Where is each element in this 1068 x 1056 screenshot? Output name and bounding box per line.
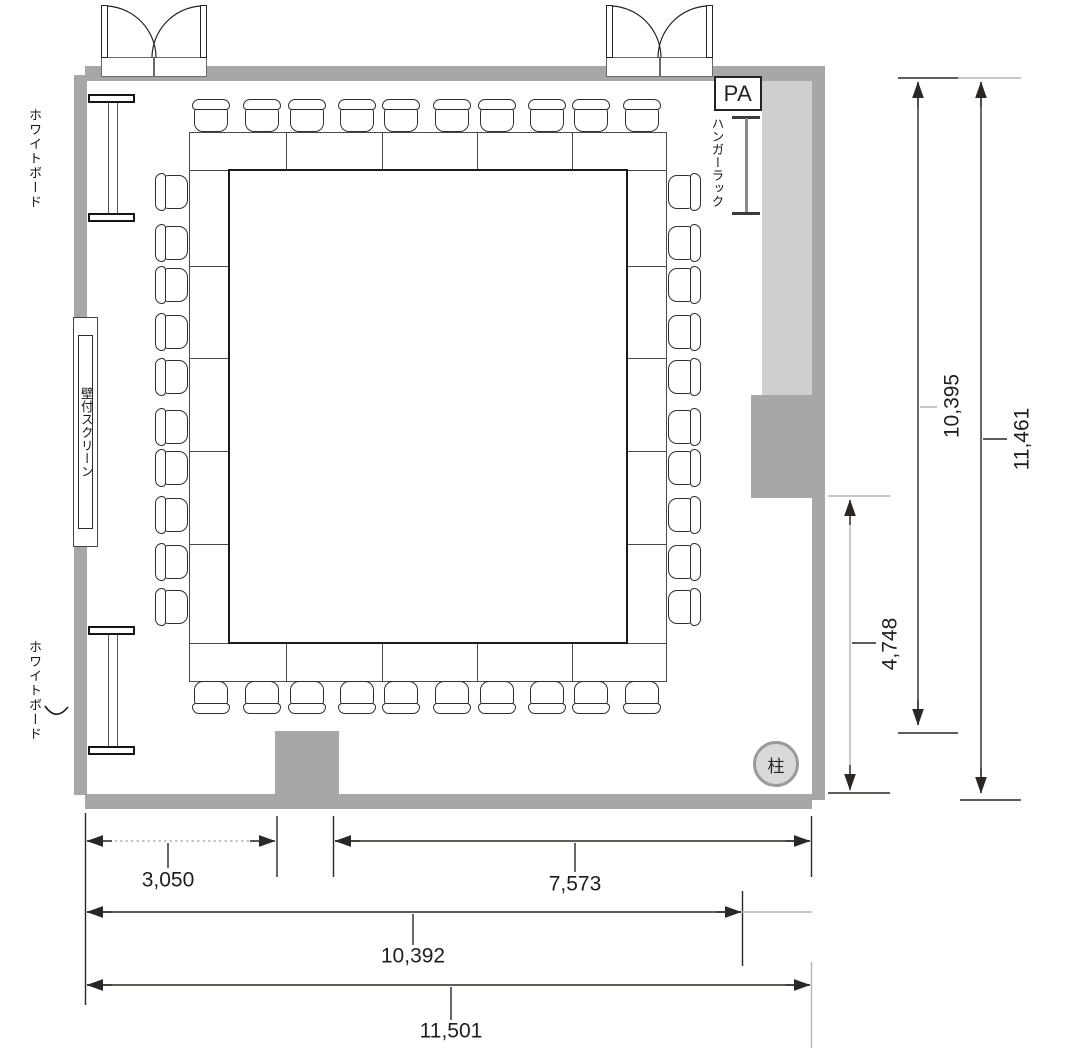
chair bbox=[668, 496, 701, 534]
chair bbox=[155, 449, 188, 487]
chair bbox=[338, 99, 376, 132]
whiteboard-cap-icon bbox=[88, 746, 135, 755]
chair bbox=[155, 224, 188, 262]
chair-back bbox=[288, 703, 326, 714]
chair bbox=[155, 358, 188, 396]
table-divider bbox=[286, 644, 287, 681]
chair-back bbox=[243, 99, 281, 110]
table-band-bottom bbox=[189, 643, 667, 682]
door-swing-arc bbox=[108, 6, 157, 58]
chair bbox=[668, 408, 701, 446]
chair bbox=[382, 99, 420, 132]
chair-back bbox=[690, 543, 701, 581]
chair bbox=[433, 681, 471, 714]
wall-protrusion-bottom bbox=[275, 731, 339, 794]
chair bbox=[623, 99, 661, 132]
door-threshold bbox=[606, 57, 660, 77]
chair bbox=[478, 99, 516, 132]
chair bbox=[668, 449, 701, 487]
floor-plan: 壁付スクリーン ホワイトボード ホワイトボード PA ハンガーラック 柱 bbox=[0, 0, 1068, 1056]
chair bbox=[623, 681, 661, 714]
chair-seat bbox=[290, 107, 324, 132]
whiteboard-cap-icon bbox=[88, 213, 135, 222]
table-inner-edge bbox=[228, 169, 628, 644]
table-divider bbox=[627, 266, 666, 267]
hanger-rack-cap-icon bbox=[732, 212, 760, 215]
storage-strip bbox=[762, 81, 812, 395]
chair bbox=[338, 681, 376, 714]
door-swing-arc bbox=[152, 6, 201, 58]
whiteboard-top-label: ホワイトボード bbox=[28, 108, 41, 210]
chair bbox=[668, 266, 701, 304]
chair-back bbox=[155, 496, 166, 534]
whiteboard-cap-icon bbox=[88, 94, 135, 103]
chair-seat bbox=[163, 226, 188, 260]
chair bbox=[192, 681, 230, 714]
chair-seat bbox=[163, 410, 188, 444]
chair-back bbox=[382, 99, 420, 110]
chair-seat bbox=[163, 498, 188, 532]
chair-seat bbox=[163, 268, 188, 302]
chair bbox=[668, 173, 701, 211]
table-band-left bbox=[189, 170, 230, 644]
chair-back bbox=[338, 99, 376, 110]
chair-seat bbox=[480, 107, 514, 132]
chair-seat bbox=[163, 590, 188, 624]
table-divider bbox=[627, 451, 666, 452]
label-pointer-curve bbox=[45, 706, 68, 714]
chair-back bbox=[478, 99, 516, 110]
chair-back bbox=[623, 99, 661, 110]
chair bbox=[155, 266, 188, 304]
chair bbox=[478, 681, 516, 714]
chair-back bbox=[155, 449, 166, 487]
wall-screen-inner: 壁付スクリーン bbox=[78, 335, 93, 529]
door-threshold bbox=[154, 57, 207, 77]
pa-box: PA bbox=[714, 76, 762, 111]
dim-label-7573: 7,573 bbox=[546, 874, 605, 897]
chair-back bbox=[528, 99, 566, 110]
chair-seat bbox=[435, 107, 469, 132]
wall-block-right bbox=[751, 395, 825, 498]
chair-seat bbox=[384, 107, 418, 132]
door-threshold bbox=[660, 57, 713, 77]
table-divider bbox=[190, 266, 229, 267]
table-divider bbox=[382, 133, 383, 170]
table-divider bbox=[190, 544, 229, 545]
table-band-right bbox=[626, 170, 667, 644]
dim-label-4748: 4,748 bbox=[880, 615, 903, 674]
chair bbox=[572, 681, 610, 714]
hanger-rack-icon bbox=[745, 118, 748, 213]
whiteboard-cap-icon bbox=[88, 626, 135, 635]
chair-back bbox=[690, 408, 701, 446]
chair-seat bbox=[625, 107, 659, 132]
dim-label-10395: 10,395 bbox=[942, 371, 965, 441]
table-band-top bbox=[189, 132, 667, 171]
chair-back bbox=[433, 703, 471, 714]
chair-back bbox=[155, 266, 166, 304]
chair-back bbox=[690, 266, 701, 304]
chair-back bbox=[382, 703, 420, 714]
dim-label-11461: 11,461 bbox=[1012, 405, 1035, 474]
door-leaf bbox=[101, 5, 108, 58]
chair bbox=[192, 99, 230, 132]
whiteboard-icon bbox=[108, 100, 118, 216]
chair bbox=[382, 681, 420, 714]
chair bbox=[155, 408, 188, 446]
chair-back bbox=[690, 358, 701, 396]
chair-back bbox=[338, 703, 376, 714]
table-divider bbox=[190, 451, 229, 452]
dim-label-10392: 10,392 bbox=[378, 946, 448, 969]
chair-back bbox=[155, 358, 166, 396]
chair bbox=[155, 313, 188, 351]
chair bbox=[668, 543, 701, 581]
chair-back bbox=[433, 99, 471, 110]
chair-back bbox=[192, 99, 230, 110]
chair-seat bbox=[245, 107, 279, 132]
chair-back bbox=[288, 99, 326, 110]
table-divider bbox=[382, 644, 383, 681]
dim-label-11501: 11,501 bbox=[417, 1021, 486, 1044]
chair-back bbox=[690, 588, 701, 626]
chair-back bbox=[192, 703, 230, 714]
chair-back bbox=[690, 224, 701, 262]
whiteboard-bottom-label: ホワイトボード bbox=[28, 640, 41, 742]
chair-back bbox=[690, 313, 701, 351]
table-divider bbox=[477, 644, 478, 681]
pa-label: PA bbox=[724, 81, 753, 107]
chair bbox=[433, 99, 471, 132]
chair-back bbox=[623, 703, 661, 714]
door-leaf bbox=[606, 5, 613, 58]
chair-back bbox=[528, 703, 566, 714]
table-divider bbox=[190, 358, 229, 359]
chair-back bbox=[690, 173, 701, 211]
chair-back bbox=[690, 449, 701, 487]
wall-screen: 壁付スクリーン bbox=[73, 317, 98, 547]
chair bbox=[243, 99, 281, 132]
door-leaf bbox=[706, 5, 713, 58]
table-divider bbox=[627, 358, 666, 359]
chair bbox=[288, 681, 326, 714]
chair-back bbox=[155, 173, 166, 211]
chair bbox=[155, 588, 188, 626]
chair-back bbox=[155, 313, 166, 351]
chair-back bbox=[572, 703, 610, 714]
dim-label-3050: 3,050 bbox=[139, 870, 198, 893]
whiteboard-icon bbox=[108, 633, 118, 749]
chair-back bbox=[572, 99, 610, 110]
table-divider bbox=[286, 133, 287, 170]
door-swing-arc bbox=[658, 6, 707, 58]
chair-back bbox=[478, 703, 516, 714]
door-threshold bbox=[101, 57, 154, 77]
chair-seat bbox=[163, 451, 188, 485]
chair-back bbox=[155, 543, 166, 581]
table-divider bbox=[572, 644, 573, 681]
chair-back bbox=[243, 703, 281, 714]
chair bbox=[668, 588, 701, 626]
door-swing-arc bbox=[613, 6, 662, 58]
chair-seat bbox=[194, 107, 228, 132]
chair-seat bbox=[163, 360, 188, 394]
door-leaf bbox=[200, 5, 207, 58]
chair bbox=[528, 681, 566, 714]
chair-seat bbox=[163, 175, 188, 209]
pillar-label: 柱 bbox=[768, 752, 785, 777]
chair-seat bbox=[530, 107, 564, 132]
chair bbox=[668, 313, 701, 351]
table-divider bbox=[627, 544, 666, 545]
chair-back bbox=[690, 496, 701, 534]
hanger-rack-label: ハンガーラック bbox=[710, 117, 723, 208]
chair bbox=[243, 681, 281, 714]
chair-seat bbox=[163, 315, 188, 349]
chair bbox=[668, 224, 701, 262]
wall-screen-label: 壁付スクリーン bbox=[79, 387, 92, 478]
chair-back bbox=[155, 224, 166, 262]
chair bbox=[155, 543, 188, 581]
pillar: 柱 bbox=[753, 741, 799, 787]
chair bbox=[572, 99, 610, 132]
chair-back bbox=[155, 588, 166, 626]
chair bbox=[155, 173, 188, 211]
wall-bottom bbox=[85, 794, 812, 809]
chair-seat bbox=[163, 545, 188, 579]
chair bbox=[288, 99, 326, 132]
chair-back bbox=[155, 408, 166, 446]
table-divider bbox=[477, 133, 478, 170]
chair bbox=[528, 99, 566, 132]
chair bbox=[668, 358, 701, 396]
table-divider bbox=[572, 133, 573, 170]
chair bbox=[155, 496, 188, 534]
chair-seat bbox=[574, 107, 608, 132]
chair-seat bbox=[340, 107, 374, 132]
